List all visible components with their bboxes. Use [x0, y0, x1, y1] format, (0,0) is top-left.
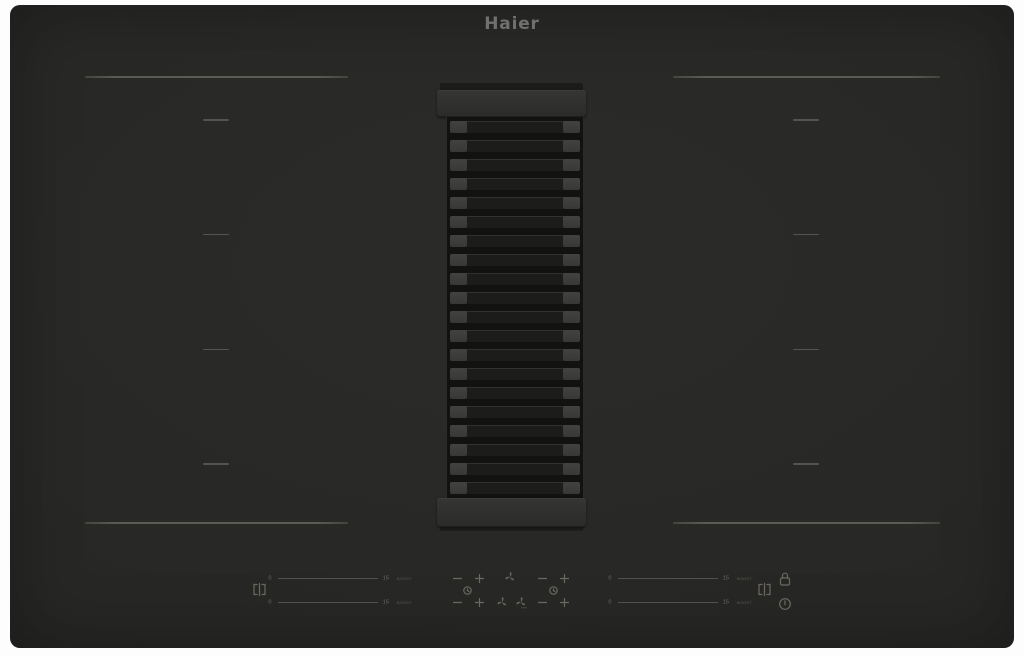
vent-slat-endcap-left [450, 216, 467, 228]
left-zone-markers [203, 119, 229, 465]
vent-slat-opening [452, 406, 578, 418]
vent-slat-endcap-right [563, 140, 580, 152]
vent-slat [447, 310, 583, 324]
vent-slat [447, 291, 583, 305]
slider-max-label: 15 [723, 575, 729, 581]
heat-slider[interactable]: 0 15 BOOST [606, 596, 766, 608]
vent-slat [447, 405, 583, 419]
zone-marker-dash [203, 349, 229, 351]
zone-marker-dash [203, 119, 229, 121]
hood-timer-controls [440, 565, 580, 615]
minus-key[interactable] [538, 598, 547, 607]
vent-slat-opening [452, 235, 578, 247]
vent-slat [447, 348, 583, 362]
vent-slat [447, 272, 583, 286]
induction-hob-surface: Haier [10, 5, 1014, 648]
fan-max-icon[interactable] [515, 596, 527, 609]
vent-slat-endcap-left [450, 292, 467, 304]
vent-slat-endcap-left [450, 368, 467, 380]
vent-slat-endcap-right [563, 178, 580, 190]
vent-slat [447, 329, 583, 343]
vent-slat-endcap-right [563, 349, 580, 361]
vent-slat-endcap-left [450, 159, 467, 171]
heat-slider[interactable]: 0 15 BOOST [266, 596, 426, 608]
vent-slat-opening [452, 140, 578, 152]
slider-min-label: 0 [267, 599, 273, 605]
minus-key[interactable] [453, 598, 462, 607]
left-zone-top-line [85, 76, 348, 78]
vent-slat-opening [452, 178, 578, 190]
vent-slat [447, 367, 583, 381]
vent-slat-opening [452, 444, 578, 456]
vent-slat [447, 196, 583, 210]
vent-slat-opening [452, 292, 578, 304]
vent-slat-endcap-right [563, 425, 580, 437]
vent-slat [447, 158, 583, 172]
zone-marker-dash [793, 119, 819, 121]
plus-key[interactable] [560, 574, 569, 583]
vent-slat-opening [452, 330, 578, 342]
vent-slat [447, 215, 583, 229]
vent-slat-endcap-left [450, 463, 467, 475]
vent-slat-opening [452, 121, 578, 133]
vent-slat [447, 443, 583, 457]
vent-slat-endcap-left [450, 121, 467, 133]
vent-slat-endcap-right [563, 159, 580, 171]
zone-marker-dash [203, 463, 229, 465]
vent-slat-endcap-right [563, 197, 580, 209]
vent-slat-endcap-left [450, 235, 467, 247]
vent-slat-endcap-right [563, 444, 580, 456]
vent-slat-endcap-left [450, 482, 467, 494]
vent-slat-opening [452, 425, 578, 437]
slider-max-label: 15 [383, 599, 389, 605]
boost-key[interactable]: BOOST [397, 600, 412, 605]
timer-icon[interactable] [463, 586, 472, 595]
right-heat-sliders: 0 15 BOOST 0 15 BOOST [606, 571, 776, 615]
vent-slat [447, 253, 583, 267]
vent-slat-opening [452, 159, 578, 171]
vent-bottom-cap [437, 498, 586, 527]
heat-slider[interactable]: 0 15 BOOST [606, 572, 766, 584]
vent-slat-opening [452, 311, 578, 323]
vent-slat-endcap-left [450, 425, 467, 437]
vent-slat-endcap-left [450, 387, 467, 399]
vent-slat-opening [452, 273, 578, 285]
vent-slat-endcap-left [450, 178, 467, 190]
extractor-grille [446, 117, 584, 498]
left-heat-sliders: 0 15 BOOST 0 15 BOOST [266, 571, 436, 615]
vent-slat-endcap-right [563, 273, 580, 285]
vent-slat [447, 177, 583, 191]
vent-slat [447, 462, 583, 476]
slider-min-label: 0 [267, 575, 273, 581]
vent-slat [447, 120, 583, 134]
boost-key[interactable]: BOOST [737, 600, 752, 605]
plus-key[interactable] [560, 598, 569, 607]
bridge-zones-icon[interactable] [757, 582, 772, 597]
right-zone-bottom-line [673, 522, 940, 524]
zone-marker-dash [793, 463, 819, 465]
slider-min-label: 0 [607, 599, 613, 605]
vent-slat-endcap-right [563, 292, 580, 304]
vent-slat-endcap-right [563, 235, 580, 247]
vent-slat-endcap-right [563, 216, 580, 228]
vent-slat-endcap-left [450, 197, 467, 209]
vent-slat-endcap-left [450, 140, 467, 152]
slider-track[interactable] [278, 602, 378, 603]
right-zone-top-line [673, 76, 940, 78]
power-icon[interactable] [778, 597, 792, 611]
vent-slat-opening [452, 216, 578, 228]
product-stage: Haier [0, 0, 1024, 656]
vent-slat-endcap-right [563, 330, 580, 342]
zone-marker-dash [203, 234, 229, 236]
vent-slat-endcap-right [563, 121, 580, 133]
right-zone-markers [793, 119, 819, 465]
vent-slat-endcap-right [563, 482, 580, 494]
vent-slat-opening [452, 368, 578, 380]
slider-max-label: 15 [383, 575, 389, 581]
vent-slat-endcap-left [450, 349, 467, 361]
slider-track[interactable] [618, 602, 718, 603]
vent-slat-endcap-right [563, 368, 580, 380]
timer-icon[interactable] [549, 586, 558, 595]
vent-slat-endcap-right [563, 254, 580, 266]
vent-slat-endcap-right [563, 463, 580, 475]
vent-slat-endcap-left [450, 273, 467, 285]
minus-key[interactable] [538, 574, 547, 583]
bridge-zones-icon[interactable] [252, 582, 267, 597]
zone-marker-dash [793, 234, 819, 236]
vent-slat [447, 424, 583, 438]
vent-slat-endcap-right [563, 311, 580, 323]
minus-key[interactable] [453, 574, 462, 583]
plus-key[interactable] [475, 574, 484, 583]
vent-slat-opening [452, 197, 578, 209]
vent-slat-endcap-left [450, 444, 467, 456]
vent-slat-endcap-left [450, 330, 467, 342]
boost-key[interactable]: BOOST [397, 576, 412, 581]
fan-icon[interactable] [504, 571, 516, 584]
vent-slat-opening [452, 463, 578, 475]
vent-slat [447, 139, 583, 153]
vent-slat-opening [452, 482, 578, 494]
zone-marker-dash [793, 349, 819, 351]
vent-slat-endcap-right [563, 387, 580, 399]
slider-min-label: 0 [607, 575, 613, 581]
slider-max-label: 15 [723, 599, 729, 605]
vent-slat-endcap-right [563, 406, 580, 418]
vent-slat [447, 386, 583, 400]
vent-slat-endcap-left [450, 254, 467, 266]
slider-track[interactable] [618, 578, 718, 579]
fan-icon[interactable] [496, 596, 508, 609]
vent-slat [447, 234, 583, 248]
vent-slat [447, 481, 583, 495]
slider-track[interactable] [278, 578, 378, 579]
vent-slat-opening [452, 254, 578, 266]
plus-key[interactable] [475, 598, 484, 607]
vent-slat-opening [452, 387, 578, 399]
vent-slat-endcap-left [450, 406, 467, 418]
brand-logo: Haier [10, 14, 1014, 34]
boost-key[interactable]: BOOST [737, 576, 752, 581]
left-zone-bottom-line [85, 522, 348, 524]
heat-slider[interactable]: 0 15 BOOST [266, 572, 426, 584]
vent-slat-endcap-left [450, 311, 467, 323]
vent-top-cap [437, 90, 586, 117]
vent-slat-opening [452, 349, 578, 361]
child-lock-icon[interactable] [778, 571, 792, 588]
